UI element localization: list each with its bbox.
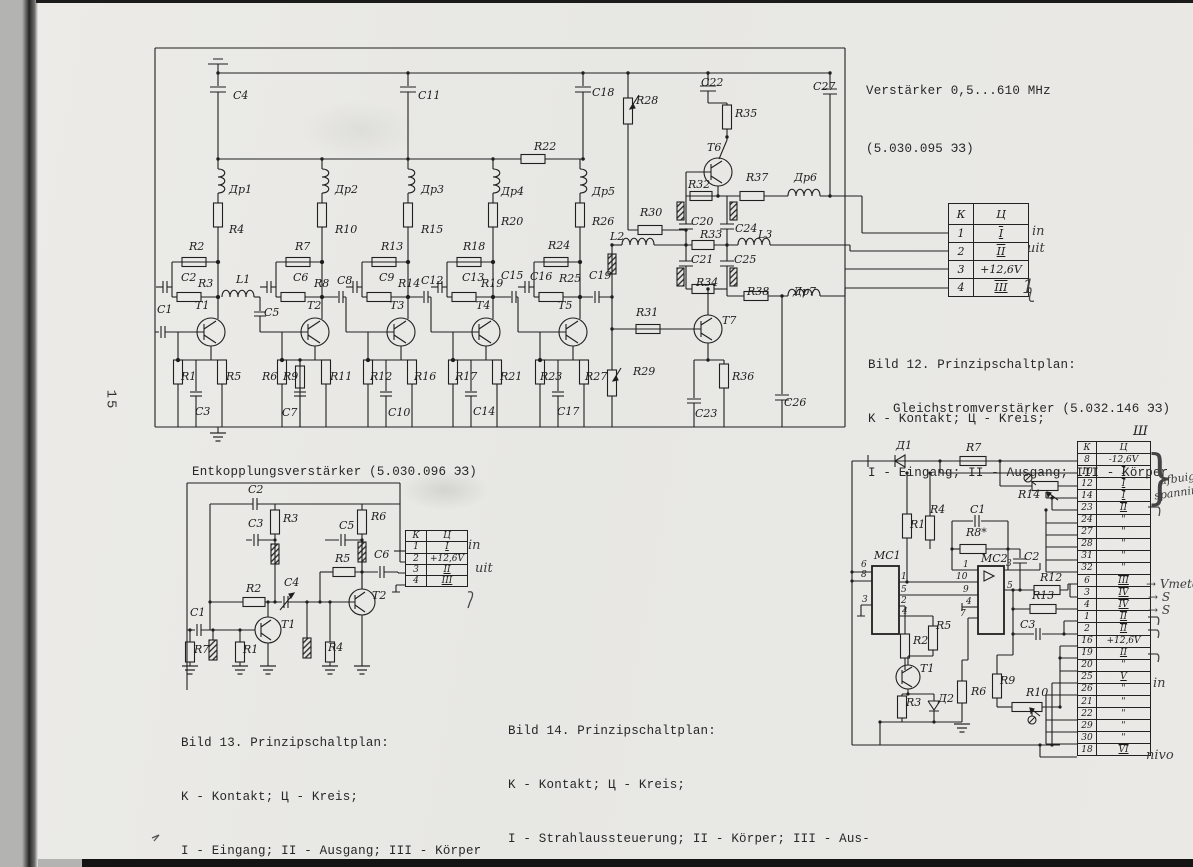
table-cell: 14: [1078, 490, 1097, 502]
table-cell: 19: [1078, 647, 1097, 659]
table-cell: ": [1097, 708, 1151, 720]
fig14-pinout-table: КЦ8-12,6V10I12I14I23II24"27"28"31"32"6II…: [1077, 441, 1151, 756]
table-cell: 8: [1078, 454, 1097, 466]
table-cell: 3: [949, 261, 974, 279]
table-cell: ": [1097, 538, 1151, 550]
table-header-cell: Ц: [974, 204, 1029, 225]
fig13-caption: Bild 13. Prinzipschaltplan: K - Kontakt;…: [181, 698, 481, 867]
table-cell: ": [1097, 514, 1151, 526]
table-header-cell: Ц: [1097, 442, 1151, 454]
table-cell: I: [1097, 466, 1151, 478]
table-cell: II: [1097, 647, 1151, 659]
table-cell: 20: [1078, 659, 1097, 671]
table-cell: II: [1097, 611, 1151, 623]
table-cell: VI: [1097, 744, 1151, 756]
table-cell: 1: [1078, 611, 1097, 623]
hw-note-nivo: nivo: [1146, 748, 1174, 763]
table-cell: I: [974, 225, 1029, 243]
table-cell: 6: [1078, 575, 1097, 587]
caption-line: I - Eingang; II - Ausgang; III - Körper: [181, 842, 481, 860]
hw-note-in: in: [1032, 224, 1045, 239]
table-cell: II: [1097, 623, 1151, 635]
caption-line: K - Kontakt; Ц - Kreis;: [508, 776, 870, 794]
table-cell: 27: [1078, 526, 1097, 538]
connector-label: Ш: [1133, 424, 1148, 439]
table-cell: +12,6V: [1097, 635, 1151, 647]
table-header-cell: К: [406, 531, 427, 542]
fig14-caption: Bild 14. Prinzipschaltplan: K - Kontakt;…: [508, 686, 870, 867]
caption-line: Bild 12. Prinzipschaltplan:: [868, 356, 1168, 374]
hw-note-vmeter: → Vmeter: [1146, 577, 1193, 591]
table-cell: +12,6V: [974, 261, 1029, 279]
pinout-table: КЦ1I2+12,6V3II4III: [405, 530, 468, 587]
table-cell: ": [1097, 683, 1151, 695]
table-cell: ": [1097, 526, 1151, 538]
table-cell: 2: [1078, 623, 1097, 635]
table-cell: 4: [1078, 599, 1097, 611]
table-cell: ": [1097, 562, 1151, 574]
table-cell: II: [427, 564, 468, 575]
table-cell: 18: [1078, 744, 1097, 756]
table-cell: III: [1097, 575, 1151, 587]
hw-note-s: → S: [1148, 590, 1170, 604]
table-cell: 16: [1078, 635, 1097, 647]
table-cell: IV: [1097, 587, 1151, 599]
fig12-pinout-table: КЦ1I2II3+12,6V4III: [948, 203, 1029, 297]
table-cell: 2: [949, 243, 974, 261]
table-cell: 31: [1078, 550, 1097, 562]
table-header-cell: Ц: [427, 531, 468, 542]
table-cell: -12,6V: [1097, 454, 1151, 466]
table-cell: 30: [1078, 732, 1097, 744]
hw-note-uit: uit: [1027, 241, 1045, 256]
fig12-title2: (5.030.095 ЭЗ): [866, 140, 1051, 158]
caption-line: I - Strahlaussteuerung; II - Körper; III…: [508, 830, 870, 848]
pinout-table: КЦ1I2II3+12,6V4III: [948, 203, 1029, 297]
hw-note-in: in: [468, 538, 481, 553]
table-cell: ": [1097, 732, 1151, 744]
caption-line: K - Kontakt; Ц - Kreis;: [181, 788, 481, 806]
table-cell: I: [1097, 490, 1151, 502]
fig14-title: Gleichstromverstärker (5.032.146 ЭЗ): [893, 400, 1170, 418]
table-cell: III: [427, 576, 468, 587]
table-cell: 21: [1078, 695, 1097, 707]
table-cell: 26: [1078, 683, 1097, 695]
fig13-pinout-table: КЦ1I2+12,6V3II4III: [405, 530, 468, 587]
fig12-circuit: [155, 48, 948, 441]
hw-note-in: in: [1153, 676, 1166, 691]
table-header-cell: К: [1078, 442, 1097, 454]
table-cell: 1: [406, 542, 427, 553]
table-cell: II: [974, 243, 1029, 261]
table-cell: IV: [1097, 599, 1151, 611]
scanned-page: C4C11C18C22C27R28R35Т6R22R37Др6Др1Др2Др3…: [0, 0, 1193, 867]
table-cell: ": [1097, 720, 1151, 732]
fig13-circuit: [182, 483, 405, 690]
table-cell: 23: [1078, 502, 1097, 514]
fig13-title: Entkopplungsverstärker (5.030.096 ЭЗ): [192, 463, 477, 481]
table-cell: I: [427, 542, 468, 553]
caption-line: Bild 14. Prinzipschaltplan:: [508, 722, 870, 740]
hw-mark: 1: [1022, 274, 1035, 298]
table-cell: 4: [949, 279, 974, 297]
table-cell: ": [1097, 659, 1151, 671]
table-cell: 22: [1078, 708, 1097, 720]
table-cell: 4: [406, 576, 427, 587]
table-cell: 25: [1078, 671, 1097, 683]
table-cell: 24: [1078, 514, 1097, 526]
pinout-table: КЦ8-12,6V10I12I14I23II24"27"28"31"32"6II…: [1077, 441, 1151, 756]
table-header-cell: К: [949, 204, 974, 225]
hw-note-s: → S: [1148, 603, 1170, 617]
table-cell: III: [974, 279, 1029, 297]
table-cell: 12: [1078, 478, 1097, 490]
page-number: 15: [102, 390, 118, 411]
table-cell: V: [1097, 671, 1151, 683]
table-cell: 29: [1078, 720, 1097, 732]
table-cell: II: [1097, 502, 1151, 514]
table-cell: 32: [1078, 562, 1097, 574]
fig12-title: Verstärker 0,5...610 MHz: [866, 82, 1051, 100]
caption-line: Bild 13. Prinzipschaltplan:: [181, 734, 481, 752]
table-cell: ": [1097, 550, 1151, 562]
hw-note-uit: uit: [475, 561, 493, 576]
table-cell: 1: [949, 225, 974, 243]
table-cell: I: [1097, 478, 1151, 490]
table-cell: +12,6V: [427, 553, 468, 564]
table-cell: 2: [406, 553, 427, 564]
fig12-title-block: Verstärker 0,5...610 MHz (5.030.095 ЭЗ): [866, 46, 1051, 194]
table-cell: 28: [1078, 538, 1097, 550]
table-cell: 3: [1078, 587, 1097, 599]
table-cell: 3: [406, 564, 427, 575]
table-cell: ": [1097, 695, 1151, 707]
table-cell: 10: [1078, 466, 1097, 478]
